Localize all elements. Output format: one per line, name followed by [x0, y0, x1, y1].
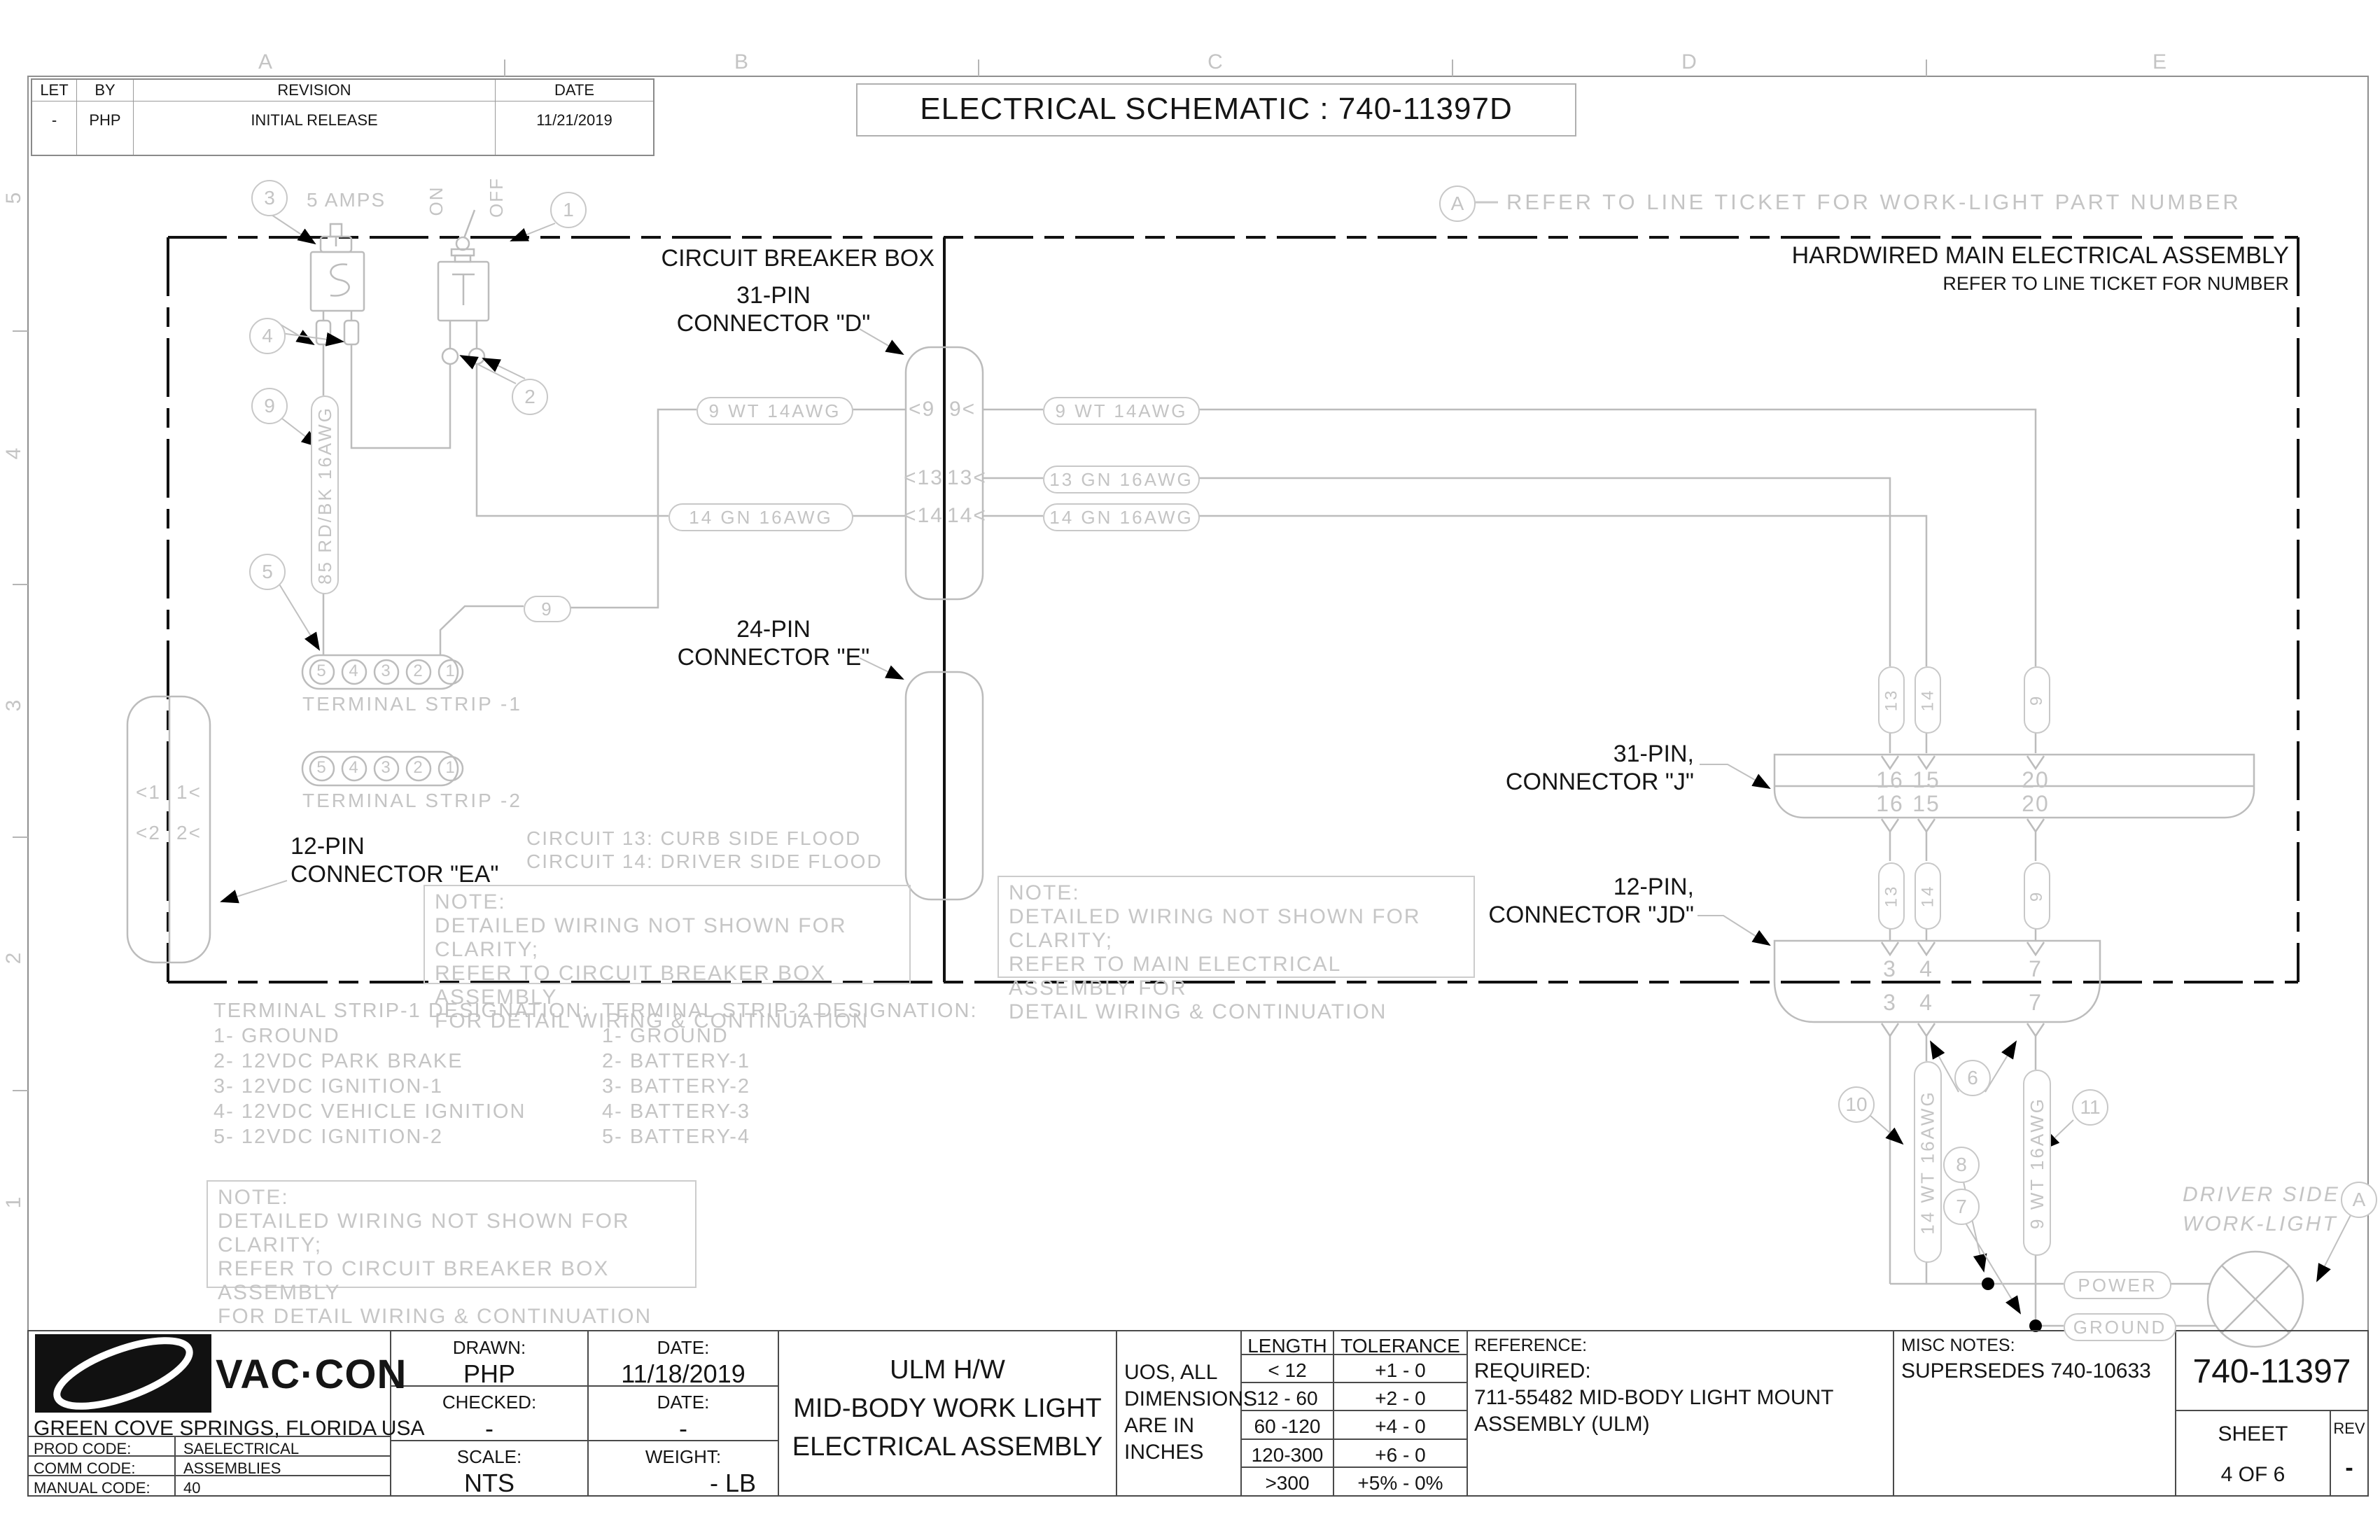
- j-pin-bottom-20: 20: [2020, 792, 2051, 815]
- junction-dot-power: [1982, 1277, 1994, 1290]
- rev-value: -: [2330, 1455, 2368, 1482]
- revision-cell-revision: INITIAL RELEASE: [134, 101, 496, 155]
- balloon-9-label: 9: [264, 395, 275, 417]
- jd-wire-tag-14-label: 14: [1918, 885, 1938, 908]
- ts1-designation-5: 5- 12VDC IGNITION-2: [213, 1127, 589, 1152]
- j-pin-top-20: 20: [2020, 769, 2051, 791]
- uos-line-4: INCHES: [1124, 1441, 1203, 1464]
- j-wire-tag-9: 9: [2024, 666, 2050, 734]
- ts1-pin-3: 3: [375, 663, 398, 680]
- zone-col-e: E: [2146, 52, 2174, 73]
- main-note-line2: DETAILED WIRING NOT SHOWN FOR CLARITY;: [1009, 905, 1464, 953]
- sheet-value: 4 OF 6: [2176, 1463, 2330, 1487]
- balloon-5: 5: [249, 554, 286, 590]
- j-pin-bottom-16: 16: [1875, 792, 1905, 815]
- checked-value: -: [391, 1414, 588, 1443]
- revision-header-by: BY: [77, 80, 134, 101]
- j-wire-tag-14-label: 14: [1918, 689, 1938, 712]
- zone-col-a: A: [252, 52, 280, 73]
- breaker-note-line2: DETAILED WIRING NOT SHOWN FOR CLARITY;: [435, 914, 899, 962]
- part-number: 740-11397: [2176, 1352, 2368, 1391]
- j-wire-tag-14: 14: [1914, 666, 1941, 734]
- wire-14gn-left-pill: 14 GN 16AWG: [668, 503, 853, 531]
- wire-9wt-pill: 9 WT 16AWG: [2023, 1070, 2051, 1256]
- j-wire-tag-13-label: 13: [1882, 689, 1901, 712]
- tol-val-2: +2 - 0: [1333, 1387, 1467, 1410]
- uos-line-3: ARE IN: [1124, 1414, 1194, 1438]
- main-box-title: HARDWIRED MAIN ELECTRICAL ASSEMBLY: [1750, 244, 2289, 267]
- balloon-6: 6: [1954, 1060, 1991, 1096]
- drawn-label: DRAWN:: [391, 1337, 588, 1359]
- balloon-11: 11: [2072, 1089, 2108, 1126]
- d-pin-right-13: 13<: [947, 468, 987, 489]
- main-note: NOTE: DETAILED WIRING NOT SHOWN FOR CLAR…: [997, 876, 1475, 978]
- ts2-pin-5: 5: [311, 759, 333, 776]
- wire-9wt14-left-pill: 9 WT 14AWG: [696, 397, 853, 425]
- balloon-5-label: 5: [262, 561, 273, 583]
- misc-notes-value: SUPERSEDES 740-10633: [1901, 1359, 2151, 1383]
- balloon-10-label: 10: [1845, 1093, 1867, 1116]
- bottom-note: NOTE: DETAILED WIRING NOT SHOWN FOR CLAR…: [206, 1180, 696, 1288]
- wire-85-label: 85 RD/BK 16AWG: [314, 406, 336, 584]
- jd-pin-bottom-4: 4: [1917, 991, 1936, 1014]
- main-note-line3: REFER TO MAIN ELECTRICAL ASSEMBLY FOR: [1009, 953, 1464, 1000]
- tolerance-header-length: LENGTH: [1241, 1335, 1333, 1357]
- revision-cell-date: 11/21/2019: [496, 101, 653, 155]
- checked-date-label: DATE:: [588, 1392, 778, 1413]
- tol-len-1: < 12: [1241, 1359, 1333, 1382]
- tol-val-1: +1 - 0: [1333, 1359, 1467, 1382]
- balloon-a-worklight-label: A: [2353, 1189, 2366, 1211]
- balloon-3: 3: [251, 180, 288, 216]
- bottom-note-line3: REFER TO CIRCUIT BREAKER BOX ASSEMBLY: [218, 1257, 685, 1305]
- breaker-box-title: CIRCUIT BREAKER BOX: [616, 246, 934, 270]
- zone-row-2: 2: [0, 944, 28, 972]
- ts2-designation-1: 1- GROUND: [602, 1026, 978, 1051]
- weight-label: WEIGHT:: [588, 1446, 778, 1468]
- revision-header-revision: REVISION: [134, 80, 496, 101]
- rev-label: REV: [2330, 1420, 2368, 1438]
- assembly-title-2: MID-BODY WORK LIGHT: [778, 1394, 1116, 1424]
- d-pin-left-9: <9: [909, 399, 935, 420]
- tol-len-5: >300: [1241, 1472, 1333, 1494]
- connector-jd-label-1: 12-PIN,: [1526, 875, 1694, 899]
- wire-9wt-label: 9 WT 16AWG: [2026, 1097, 2048, 1229]
- misc-notes-label: MISC NOTES:: [1901, 1336, 2015, 1356]
- ea-pin-right-1: 1<: [176, 783, 202, 802]
- uos-line-1: UOS, ALL: [1124, 1361, 1217, 1385]
- ea-pin-right-2: 2<: [176, 823, 202, 843]
- balloon-4-label: 4: [262, 325, 273, 347]
- jd-wire-tag-9: 9: [2024, 862, 2050, 930]
- balloon-1: 1: [550, 192, 587, 228]
- jd-wire-tag-9-label: 9: [2027, 890, 2047, 902]
- balloon-1-label: 1: [563, 199, 574, 221]
- main-box-subtitle: REFER TO LINE TICKET FOR NUMBER: [1939, 274, 2289, 293]
- balloon-a-worklight: A: [2341, 1182, 2377, 1218]
- connector-ea-label-2: CONNECTOR "EA": [290, 862, 498, 886]
- d-pin-right-9: 9<: [949, 399, 976, 420]
- balloon-3-label: 3: [264, 187, 275, 209]
- ts1-designation-3: 3- 12VDC IGNITION-1: [213, 1077, 589, 1102]
- drawing-title: ELECTRICAL SCHEMATIC : 740-11397D: [857, 94, 1576, 125]
- power-label: POWER: [2078, 1275, 2157, 1296]
- ts2-designation-title: TERMINAL STRIP-2 DESIGNATION:: [602, 1001, 978, 1026]
- tol-val-4: +6 - 0: [1333, 1444, 1467, 1466]
- jd-pin-top-3: 3: [1880, 958, 1900, 980]
- ts2-designation-4: 4- BATTERY-3: [602, 1102, 978, 1127]
- reference-line-1: REQUIRED:: [1474, 1359, 1591, 1383]
- connector-e-label-2: CONNECTOR "E": [668, 645, 878, 669]
- breaker-note: NOTE: DETAILED WIRING NOT SHOWN FOR CLAR…: [423, 885, 911, 984]
- assembly-title-1: ULM H/W: [778, 1355, 1116, 1385]
- jd-wire-tag-14: 14: [1914, 862, 1941, 930]
- ts1-pin-5: 5: [311, 663, 333, 680]
- tol-val-5: +5% - 0%: [1333, 1472, 1467, 1494]
- reference-line-2: 711-55482 MID-BODY LIGHT MOUNT: [1474, 1386, 1834, 1410]
- ground-label: GROUND: [2073, 1317, 2167, 1338]
- zone-row-5: 5: [0, 183, 28, 211]
- wire-9-tag-pill: 9: [524, 596, 571, 622]
- revision-cell-let: -: [32, 101, 77, 155]
- ground-pill: GROUND: [2064, 1313, 2176, 1341]
- wire-9wt14-right-label: 9 WT 14AWG: [1056, 400, 1188, 422]
- wire-9wt14-right-pill: 9 WT 14AWG: [1043, 397, 1200, 425]
- ts2-pin-2: 2: [407, 759, 430, 776]
- ts2-pin-4: 4: [343, 759, 365, 776]
- ts1-designation: TERMINAL STRIP-1 DESIGNATION: 1- GROUND …: [213, 1001, 589, 1152]
- manual-code-value: 40: [183, 1479, 200, 1497]
- scale-value: NTS: [391, 1469, 588, 1498]
- reference-label: REFERENCE:: [1474, 1336, 1587, 1356]
- tol-len-4: 120-300: [1241, 1444, 1333, 1466]
- bottom-note-line4: FOR DETAIL WIRING & CONTINUATION: [218, 1305, 685, 1329]
- d-pin-left-14: <14: [904, 505, 944, 526]
- company-logotype: VAC·CON: [216, 1351, 407, 1398]
- wire-14gn-right-label: 14 GN 16AWG: [1049, 507, 1193, 528]
- work-light-note-text: REFER TO LINE TICKET FOR WORK-LIGHT PART…: [1506, 191, 2241, 213]
- wire-14wt-label: 14 WT 16AWG: [1917, 1090, 1939, 1234]
- connector-d-label-2: CONNECTOR "D": [668, 311, 878, 335]
- switch-off-label: OFF: [475, 180, 517, 215]
- zone-col-c: C: [1202, 52, 1230, 73]
- prod-code-value: SAELECTRICAL: [183, 1440, 299, 1458]
- manual-code-label: MANUAL CODE:: [34, 1479, 150, 1497]
- work-light-label-2: WORK-LIGHT: [2183, 1214, 2338, 1235]
- j-wire-tag-9-label: 9: [2027, 694, 2047, 706]
- checked-label: CHECKED:: [391, 1392, 588, 1413]
- balloon-6-label: 6: [1967, 1067, 1978, 1089]
- balloon-7-label: 7: [1956, 1196, 1967, 1218]
- power-pill: POWER: [2064, 1271, 2171, 1299]
- drawn-value: PHP: [391, 1359, 588, 1389]
- balloon-8-label: 8: [1956, 1154, 1967, 1176]
- zone-row-3: 3: [0, 691, 28, 719]
- jd-pin-top-7: 7: [2026, 958, 2045, 980]
- wire-14gn-left-label: 14 GN 16AWG: [689, 507, 832, 528]
- ts1-pin-2: 2: [407, 663, 430, 680]
- scale-label: SCALE:: [391, 1446, 588, 1468]
- connector-e-label-1: 24-PIN: [689, 617, 857, 641]
- j-pin-top-15: 15: [1911, 769, 1942, 791]
- zone-row-1: 1: [0, 1188, 28, 1216]
- wire-14wt-pill: 14 WT 16AWG: [1914, 1061, 1942, 1263]
- weight-value: - LB: [588, 1469, 756, 1498]
- assembly-title-3: ELECTRICAL ASSEMBLY: [778, 1432, 1116, 1462]
- jd-pin-bottom-7: 7: [2026, 991, 2045, 1014]
- balloon-a-top-label: A: [1451, 192, 1464, 215]
- jd-pin-bottom-3: 3: [1880, 991, 1900, 1014]
- tol-len-2: 12 - 60: [1241, 1387, 1333, 1410]
- ts2-designation-5: 5- BATTERY-4: [602, 1127, 978, 1152]
- company-location: GREEN COVE SPRINGS, FLORIDA USA: [34, 1417, 424, 1441]
- ts2-label: TERMINAL STRIP -2: [302, 791, 522, 811]
- revision-table: LET BY REVISION DATE - PHP INITIAL RELEA…: [31, 78, 654, 156]
- d-pin-left-13: <13: [904, 468, 944, 489]
- revision-header-date: DATE: [496, 80, 653, 101]
- balloon-2: 2: [512, 379, 548, 415]
- work-light-label-1: DRIVER SIDE: [2183, 1184, 2340, 1205]
- main-note-line4: DETAIL WIRING & CONTINUATION: [1009, 1000, 1464, 1024]
- uos-line-2: DIMENSIONS: [1124, 1387, 1257, 1411]
- wire-9-tag: 9: [541, 598, 553, 620]
- prod-code-label: PROD CODE:: [34, 1440, 131, 1458]
- amps-label: 5 AMPS: [307, 190, 386, 210]
- j-wire-tag-13: 13: [1878, 666, 1905, 734]
- ts1-designation-1: 1- GROUND: [213, 1026, 589, 1051]
- d-pin-right-14: 14<: [947, 505, 987, 526]
- drawn-date-label: DATE:: [588, 1337, 778, 1359]
- ts2-designation-2: 2- BATTERY-1: [602, 1051, 978, 1077]
- main-note-line1: NOTE:: [1009, 881, 1464, 905]
- balloon-8: 8: [1943, 1147, 1980, 1183]
- balloon-2-label: 2: [524, 386, 535, 408]
- revision-cell-by: PHP: [77, 101, 134, 155]
- wire-14gn-right-pill: 14 GN 16AWG: [1043, 503, 1200, 531]
- ts2-pin-1: 1: [440, 759, 462, 776]
- connector-jd-label-2: CONNECTOR "JD": [1484, 903, 1694, 927]
- wire-13gn-right-label: 13 GN 16AWG: [1049, 469, 1193, 491]
- tol-len-3: 60 -120: [1241, 1415, 1333, 1438]
- connector-ea-label-1: 12-PIN: [290, 834, 365, 858]
- balloon-a-top: A: [1439, 185, 1476, 222]
- bottom-note-line1: NOTE:: [218, 1186, 685, 1210]
- switch-on-label: ON: [419, 183, 454, 218]
- connector-j-label-2: CONNECTOR "J": [1491, 770, 1694, 794]
- ts1-designation-2: 2- 12VDC PARK BRAKE: [213, 1051, 589, 1077]
- balloon-7: 7: [1943, 1189, 1980, 1225]
- reference-line-3: ASSEMBLY (ULM): [1474, 1413, 1650, 1436]
- vac-con-logo-icon: [35, 1327, 211, 1420]
- sheet-label: SHEET: [2176, 1422, 2330, 1446]
- connector-d-label-1: 31-PIN: [689, 283, 857, 307]
- j-pin-bottom-15: 15: [1911, 792, 1942, 815]
- ts1-designation-4: 4- 12VDC VEHICLE IGNITION: [213, 1102, 589, 1127]
- ts1-pin-4: 4: [343, 663, 365, 680]
- ts1-label: TERMINAL STRIP -1: [302, 694, 522, 714]
- drawn-date-value: 11/18/2019: [588, 1359, 778, 1389]
- comm-code-label: COMM CODE:: [34, 1459, 135, 1478]
- schematic-sheet: A B C D E 5 4 3 2 1 LET BY REVISION DATE…: [0, 0, 2380, 1540]
- balloon-9: 9: [251, 388, 288, 424]
- bottom-note-line2: DETAILED WIRING NOT SHOWN FOR CLARITY;: [218, 1210, 685, 1257]
- balloon-11-label: 11: [2080, 1096, 2100, 1119]
- breaker-note-line1: NOTE:: [435, 890, 899, 914]
- connector-j-label-1: 31-PIN,: [1526, 742, 1694, 766]
- wire-9wt14-left-label: 9 WT 14AWG: [709, 400, 841, 422]
- zone-col-d: D: [1676, 52, 1704, 73]
- ts2-designation-3: 3- BATTERY-2: [602, 1077, 978, 1102]
- comm-code-value: ASSEMBLIES: [183, 1459, 281, 1478]
- wire-85-pill: 85 RD/BK 16AWG: [311, 395, 339, 594]
- j-pin-top-16: 16: [1875, 769, 1905, 791]
- ea-pin-left-2: <2: [136, 823, 161, 843]
- circuit-14-text: CIRCUIT 14: DRIVER SIDE FLOOD: [526, 852, 883, 871]
- circuit-13-text: CIRCUIT 13: CURB SIDE FLOOD: [526, 829, 861, 848]
- ts2-designation: TERMINAL STRIP-2 DESIGNATION: 1- GROUND …: [602, 1001, 978, 1152]
- jd-wire-tag-13: 13: [1878, 862, 1905, 930]
- jd-wire-tag-13-label: 13: [1882, 885, 1901, 908]
- tol-val-3: +4 - 0: [1333, 1415, 1467, 1438]
- revision-header-let: LET: [32, 80, 77, 101]
- wire-13gn-right-pill: 13 GN 16AWG: [1043, 465, 1200, 493]
- zone-row-4: 4: [0, 439, 28, 467]
- checked-date-value: -: [588, 1414, 778, 1443]
- ts1-pin-1: 1: [440, 663, 462, 680]
- ea-pin-left-1: <1: [136, 783, 161, 802]
- jd-pin-top-4: 4: [1917, 958, 1936, 980]
- ts1-designation-title: TERMINAL STRIP-1 DESIGNATION:: [213, 1001, 589, 1026]
- zone-col-b: B: [728, 52, 756, 73]
- ts2-pin-3: 3: [375, 759, 398, 776]
- balloon-4: 4: [249, 318, 286, 354]
- tolerance-header-tolerance: TOLERANCE: [1333, 1335, 1467, 1357]
- balloon-10: 10: [1838, 1086, 1875, 1123]
